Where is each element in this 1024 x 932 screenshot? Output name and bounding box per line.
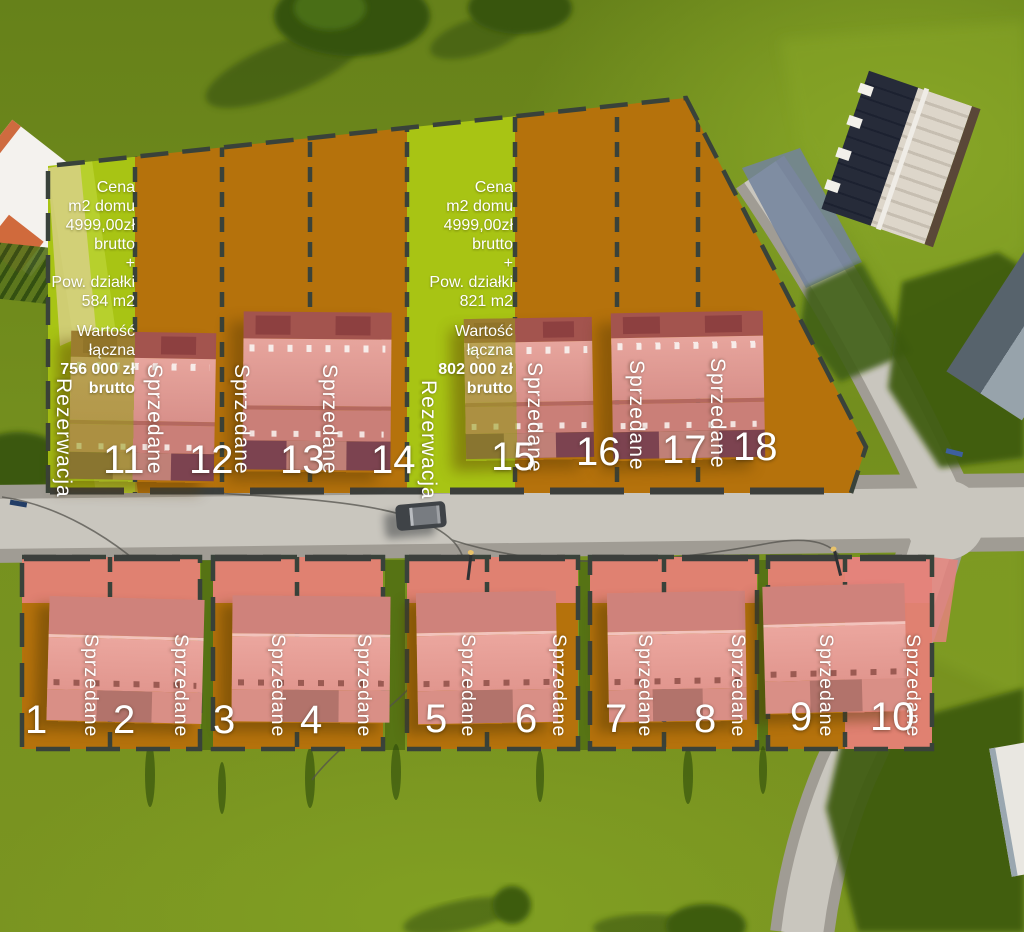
- plot-13-number[interactable]: 13: [280, 440, 325, 480]
- plot-17-number[interactable]: 17: [662, 430, 707, 470]
- plot-16-number[interactable]: 16: [576, 432, 621, 472]
- plot-7-number[interactable]: 7: [605, 699, 627, 739]
- plot-11-offer[interactable]: Cena m2 domu 4999,00zł brutto + Pow. dzi…: [13, 178, 135, 398]
- plot-5-number[interactable]: 5: [425, 699, 447, 739]
- plot-6-status[interactable]: Sprzedane: [546, 634, 572, 737]
- plot-9-number[interactable]: 9: [790, 697, 812, 737]
- plot-11-offer-price: Cena m2 domu 4999,00zł brutto + Pow. dzi…: [51, 179, 135, 310]
- plot-6-number[interactable]: 6: [515, 699, 537, 739]
- plot-11-offer-value-label: Wartość łączna: [13, 322, 135, 360]
- plot-4-status[interactable]: Sprzedane: [351, 634, 377, 737]
- plot-1-status[interactable]: Sprzedane: [78, 634, 104, 737]
- plot-14-number[interactable]: 14: [371, 440, 416, 480]
- plot-5-status[interactable]: Sprzedane: [455, 634, 481, 737]
- plot-15-offer[interactable]: Cena m2 domu 4999,00zł brutto + Pow. dzi…: [391, 178, 513, 398]
- plot-2-number[interactable]: 2: [113, 700, 135, 740]
- plot-15-number[interactable]: 15: [491, 437, 536, 477]
- plot-2-status[interactable]: Sprzedane: [168, 634, 194, 737]
- plot-15-offer-value: 802 000 zł brutto: [391, 360, 513, 398]
- plot-8-status[interactable]: Sprzedane: [725, 634, 751, 737]
- plot-12-number[interactable]: 12: [189, 440, 234, 480]
- car: [395, 501, 447, 531]
- plot-10-zone-ext: [932, 557, 958, 642]
- plot-9-status[interactable]: Sprzedane: [813, 634, 839, 737]
- plot-3-number[interactable]: 3: [213, 700, 235, 740]
- plot-10-number[interactable]: 10: [870, 697, 915, 737]
- estate-site-plan: Cena m2 domu 4999,00zł brutto + Pow. dzi…: [0, 0, 1024, 932]
- plot-15-offer-value-label: Wartość łączna: [391, 322, 513, 360]
- plot-11-number[interactable]: 11: [103, 440, 145, 480]
- plot-7-status[interactable]: Sprzedane: [632, 634, 658, 737]
- plot-1-number[interactable]: 1: [25, 700, 47, 740]
- plot-15-offer-price: Cena m2 domu 4999,00zł brutto + Pow. dzi…: [429, 179, 513, 310]
- plot-8-number[interactable]: 8: [694, 699, 716, 739]
- plot-15-status[interactable]: Rezerwacja: [415, 380, 441, 500]
- plot-17-status[interactable]: Sprzedane: [623, 360, 649, 471]
- plot-3-status[interactable]: Sprzedane: [265, 634, 291, 737]
- plot-4-number[interactable]: 4: [300, 700, 322, 740]
- plot-11-status[interactable]: Rezerwacja: [50, 378, 76, 498]
- plot-18-number[interactable]: 18: [733, 427, 778, 467]
- plot-18-status[interactable]: Sprzedane: [704, 358, 730, 469]
